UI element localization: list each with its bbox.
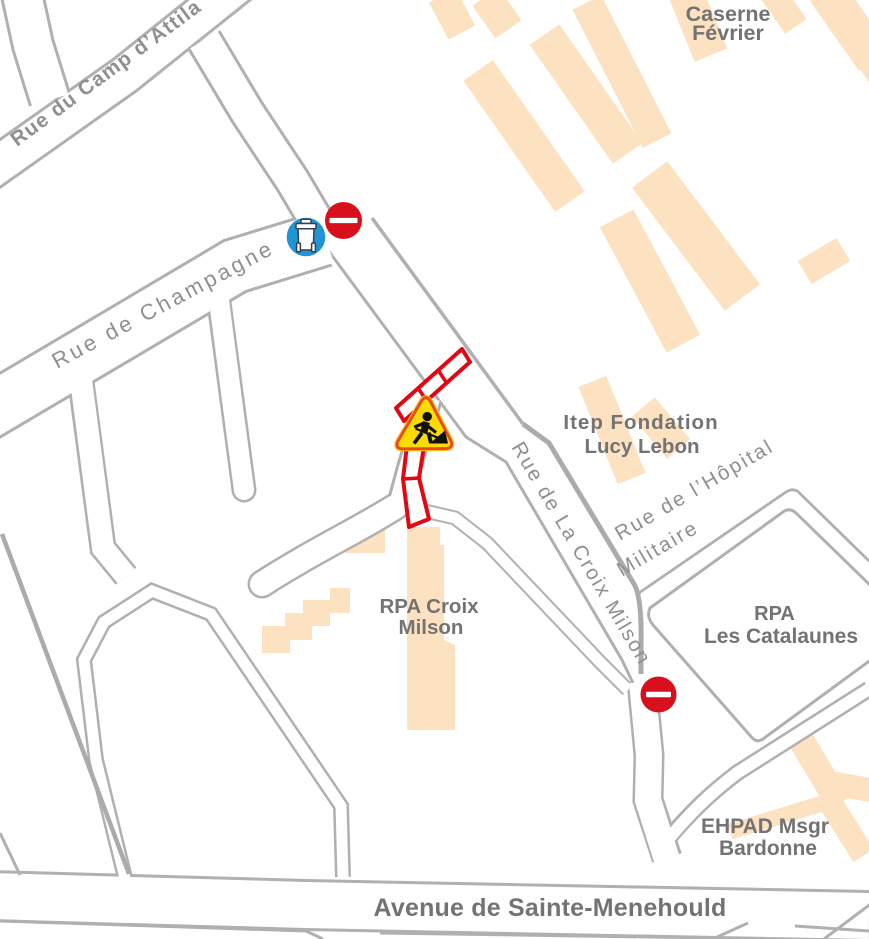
svg-text:Février: Février bbox=[692, 21, 764, 45]
svg-text:Bardonne: Bardonne bbox=[719, 837, 817, 860]
svg-text:EHPAD Msgr: EHPAD Msgr bbox=[701, 815, 829, 838]
svg-text:Les Catalaunes: Les Catalaunes bbox=[704, 625, 858, 648]
svg-text:Milson: Milson bbox=[399, 616, 464, 639]
svg-text:Lucy Lebon: Lucy Lebon bbox=[584, 435, 699, 458]
svg-text:RPA Croix: RPA Croix bbox=[379, 595, 479, 618]
svg-text:RPA: RPA bbox=[754, 603, 795, 625]
svg-text:Avenue de Sainte-Menehould: Avenue de Sainte-Menehould bbox=[374, 894, 727, 922]
svg-text:Itep Fondation: Itep Fondation bbox=[563, 411, 718, 434]
